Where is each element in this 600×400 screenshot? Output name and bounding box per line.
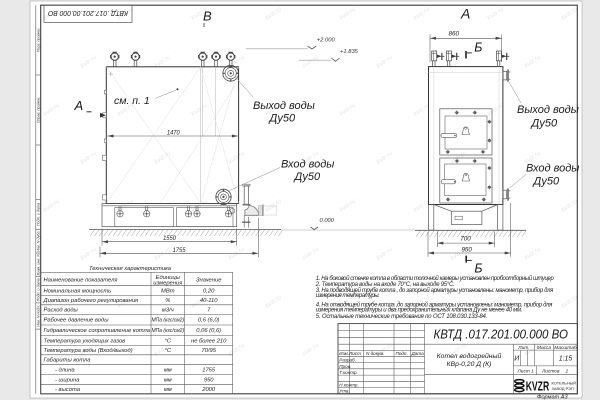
svg-text:Взам. инв. N: Взам. инв. N	[37, 254, 41, 276]
svg-text:N докум.: N докум.	[366, 351, 385, 356]
svg-text:Справ. примен.: Справ. примен.	[37, 97, 41, 124]
svg-text:0,06 (0,6): 0,06 (0,6)	[196, 328, 221, 334]
svg-text:Вход воды: Вход воды	[281, 159, 334, 171]
svg-text:0.000: 0.000	[320, 218, 335, 224]
svg-text:Выход воды: Выход воды	[517, 104, 579, 116]
svg-text:см. п. 1: см. п. 1	[114, 95, 150, 107]
svg-text:70/95: 70/95	[201, 348, 216, 354]
svg-text:Листов: Листов	[541, 369, 560, 375]
svg-text:измерения температуры.: измерения температуры.	[316, 293, 380, 299]
svg-text:Ду50: Ду50	[530, 117, 558, 129]
svg-text:+1.835: +1.835	[340, 49, 359, 55]
svg-text:Температура воды (Вход/выход): Температура воды (Вход/выход)	[44, 348, 133, 354]
svg-text:Лист: Лист	[517, 369, 530, 375]
svg-text:2000: 2000	[201, 387, 216, 393]
svg-text:0,20: 0,20	[203, 289, 215, 295]
svg-text:700: 700	[460, 236, 471, 243]
svg-text:860: 860	[449, 31, 460, 38]
svg-text:- ширина: - ширина	[55, 377, 80, 383]
svg-text:1755: 1755	[202, 368, 216, 374]
svg-text:- высота: - высота	[55, 387, 81, 393]
svg-text:Утв.: Утв.	[339, 389, 349, 394]
svg-text:Номинальная мощность: Номинальная мощность	[44, 289, 112, 295]
svg-text:мм: мм	[164, 387, 172, 393]
svg-text:Масса: Масса	[537, 345, 552, 351]
svg-text:Перв. примен.: Перв. примен.	[37, 28, 41, 53]
svg-text:Рабочее давление воды: Рабочее давление воды	[44, 318, 110, 324]
svg-text:Подп.: Подп.	[396, 351, 408, 356]
svg-text:А: А	[74, 98, 84, 113]
svg-text:ЗАВОД РЭП: ЗАВОД РЭП	[552, 386, 574, 391]
svg-text:КВТД .017.201.00.000 ВО: КВТД .017.201.00.000 ВО	[48, 9, 128, 18]
svg-text:Ду50: Ду50	[293, 171, 321, 183]
svg-text:Пров.: Пров.	[339, 364, 351, 369]
svg-text:Изм.Лист: Изм.Лист	[339, 351, 361, 356]
svg-text:Диапазон рабочего регулировани: Диапазон рабочего регулирования	[43, 298, 139, 304]
svg-text:Лит.: Лит.	[517, 345, 529, 351]
svg-text:Подп. и дата: Подп. и дата	[37, 203, 41, 226]
svg-text:КВТД .017.201.00.000 ВО: КВТД .017.201.00.000 ВО	[434, 326, 569, 341]
svg-text:2: 2	[565, 369, 569, 375]
svg-text:Подп. и дата: Подп. и дата	[37, 278, 41, 301]
svg-text:Инв. N подл.: Инв. N подл.	[37, 305, 41, 327]
svg-text:1550: 1550	[163, 235, 176, 242]
svg-text:измерения: измерения	[153, 280, 182, 286]
svg-text:Техническая характеристика: Техническая характеристика	[89, 266, 172, 272]
svg-text:Н.контр.: Н.контр.	[339, 383, 358, 388]
svg-text:Расход воды: Расход воды	[44, 308, 79, 314]
svg-text:Инв. N дубл.: Инв. N дубл.	[37, 231, 41, 252]
svg-text:МВт: МВт	[161, 289, 175, 295]
svg-text:Ду50: Ду50	[532, 176, 560, 188]
svg-text:не более 210: не более 210	[191, 338, 227, 344]
svg-text:2. Температура воды на входе: 2. Температура воды на входе 70°С, на вы…	[315, 282, 455, 288]
svg-text:Масштаб: Масштаб	[554, 345, 577, 351]
svg-text:Габариты котла: Габариты котла	[44, 358, 92, 364]
svg-text:мм: мм	[164, 377, 172, 383]
svg-text:°С: °С	[165, 338, 172, 344]
svg-text:1470: 1470	[167, 129, 180, 136]
svg-text:1755: 1755	[173, 247, 186, 254]
svg-text:Вход воды: Вход воды	[526, 163, 579, 175]
svg-text:950: 950	[461, 246, 472, 253]
svg-text:мм: мм	[164, 368, 172, 374]
svg-text:%: %	[165, 298, 170, 304]
svg-text:KVZR: KVZR	[526, 380, 550, 394]
svg-text:Б: Б	[474, 41, 482, 55]
svg-text:КВр-0,20 Д (К): КВр-0,20 Д (К)	[447, 361, 492, 368]
svg-text:Наименование показателя: Наименование показателя	[44, 278, 118, 284]
svg-text:Т.контр.: Т.контр.	[339, 370, 358, 375]
svg-text:40-110: 40-110	[200, 298, 218, 304]
svg-text:1:15: 1:15	[559, 356, 573, 363]
svg-text:5. Остальные технические треб: 5. Остальные технические требования по О…	[316, 314, 488, 320]
svg-text:Значение: Значение	[196, 278, 222, 284]
svg-text:Дата: Дата	[411, 351, 425, 356]
svg-text:1: 1	[531, 369, 534, 375]
svg-text:Котел водогрейный: Котел водогрейный	[437, 352, 502, 360]
svg-text:+2.000: +2.000	[317, 38, 336, 44]
svg-text:- длина: - длина	[55, 368, 75, 374]
svg-text:950: 950	[204, 377, 214, 383]
svg-text:Формат А3: Формат А3	[537, 395, 568, 400]
svg-text:Гидравлическое сопротивление к: Гидравлическое сопротивление котла	[44, 328, 151, 334]
svg-text:измерения температуры и два пр: измерения температуры и два предохраните…	[316, 307, 523, 313]
svg-text:м3/ч: м3/ч	[162, 308, 174, 314]
svg-text:°С: °С	[165, 348, 172, 354]
svg-text:МПа (кгс/см2): МПа (кгс/см2)	[151, 318, 184, 324]
svg-text:Выход воды: Выход воды	[253, 100, 315, 112]
svg-text:А: А	[460, 6, 470, 22]
svg-text:Б: Б	[474, 262, 482, 276]
svg-text:Ду50: Ду50	[268, 113, 296, 125]
svg-text:В: В	[203, 8, 212, 23]
svg-text:МПа (кгс/см2): МПа (кгс/см2)	[151, 328, 184, 334]
svg-text:Температура уходящих газов: Температура уходящих газов	[44, 338, 126, 344]
svg-text:0,6 (6,0): 0,6 (6,0)	[198, 318, 220, 324]
svg-text:Разраб.: Разраб.	[339, 358, 356, 363]
